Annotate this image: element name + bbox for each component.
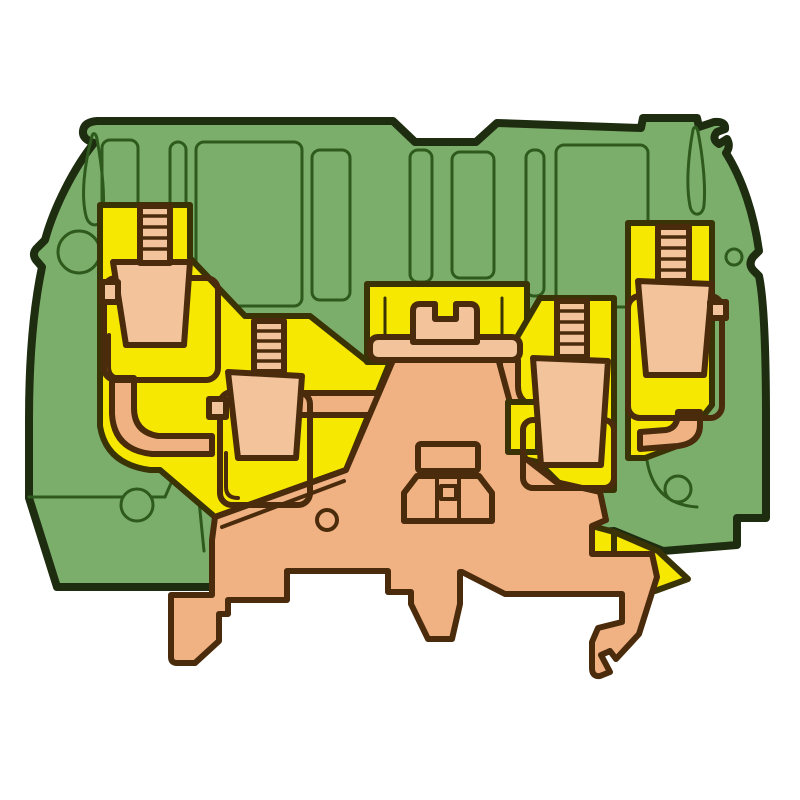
screw-upper-right — [658, 227, 689, 281]
illustration-canvas — [0, 0, 800, 800]
wire-tab-upper-left — [102, 282, 118, 302]
screw-upper-left — [140, 206, 170, 263]
wire-tab-upper-right — [710, 302, 726, 318]
clamp-body-upper-right — [638, 281, 712, 375]
clamp-body-mid-right — [533, 358, 608, 465]
screw-mid-left — [254, 321, 284, 372]
terminal-block-illustration — [0, 0, 800, 800]
latch-notch — [121, 489, 153, 521]
cage-clamp-top-bar — [418, 444, 478, 471]
cage-clamp-latch — [441, 486, 456, 499]
cage-clamp — [404, 444, 492, 521]
pivot-hole — [665, 476, 691, 502]
wire-tab-mid-left — [209, 399, 226, 417]
clamp-body-mid-left — [228, 372, 302, 458]
clamp-body-upper-left — [113, 262, 190, 345]
screw-mid-right — [557, 301, 587, 357]
